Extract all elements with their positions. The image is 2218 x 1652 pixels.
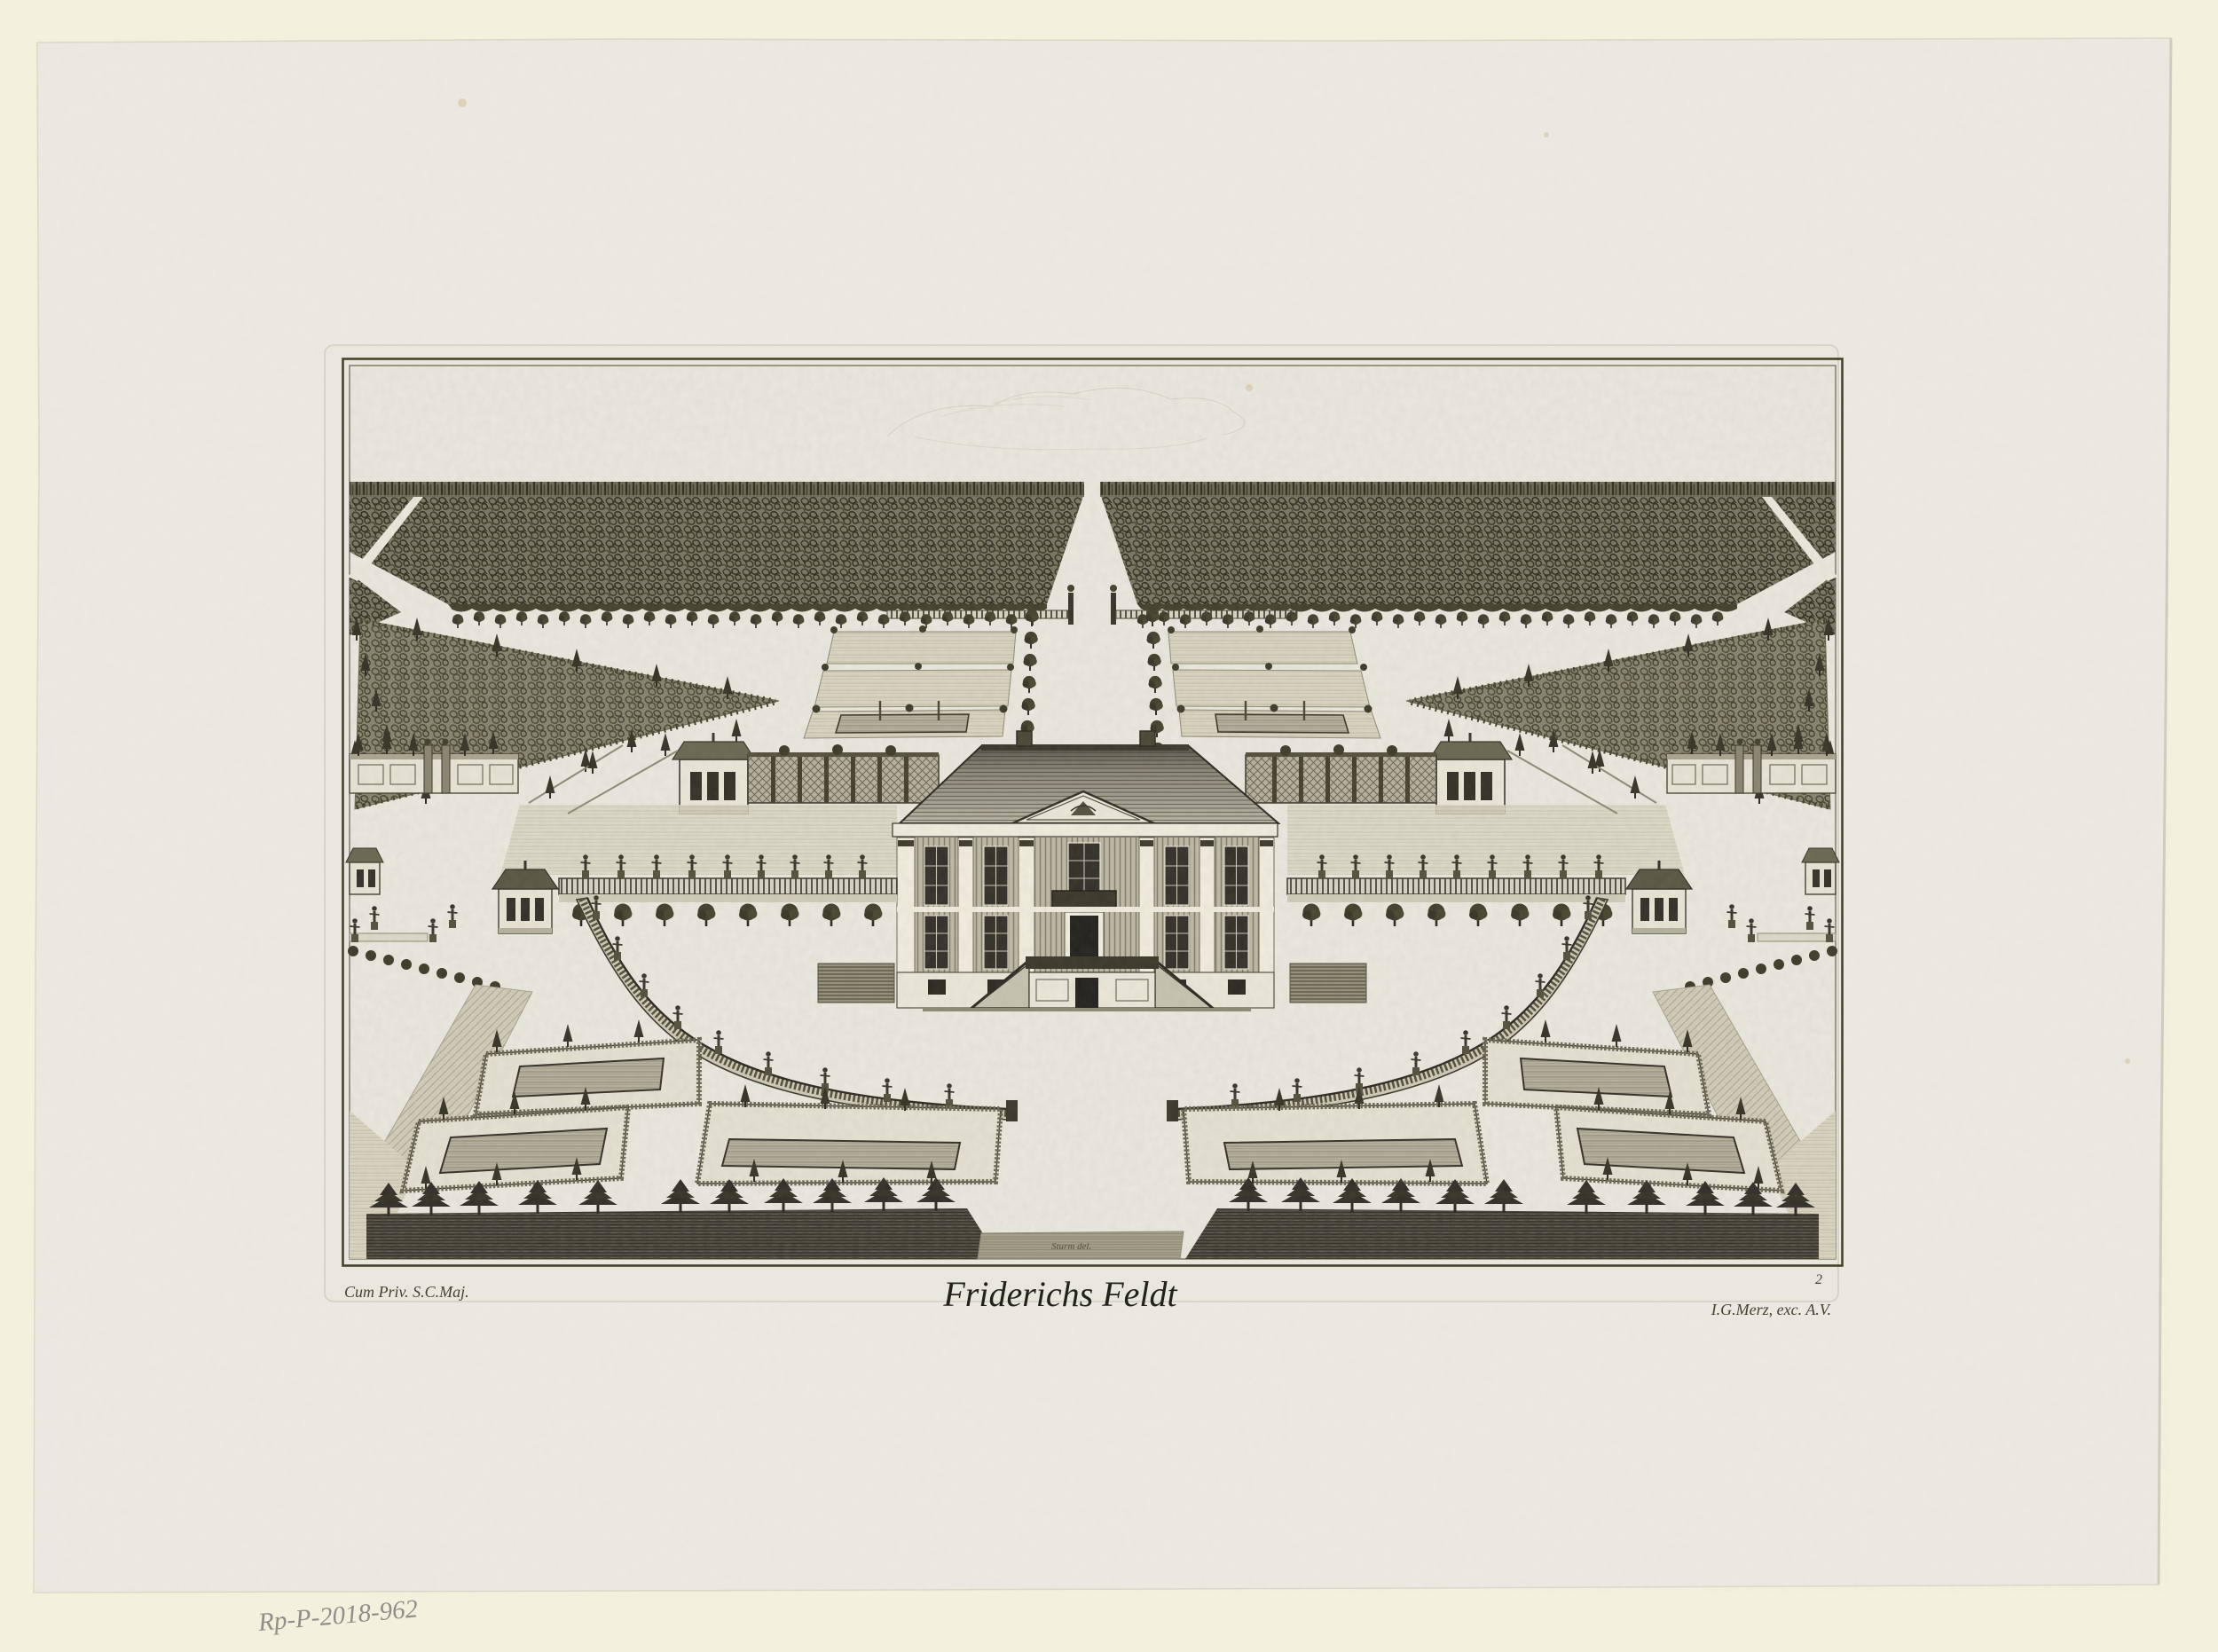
svg-text:Friderichs Feldt: Friderichs Feldt	[942, 1274, 1177, 1314]
svg-text:Cum Priv. S.C.Maj.: Cum Priv. S.C.Maj.	[344, 1283, 469, 1301]
svg-text:2: 2	[1815, 1272, 1822, 1287]
svg-text:I.G.Merz, exc. A.V.: I.G.Merz, exc. A.V.	[1711, 1301, 1831, 1318]
svg-text:Sturm del.: Sturm del.	[1051, 1241, 1091, 1252]
